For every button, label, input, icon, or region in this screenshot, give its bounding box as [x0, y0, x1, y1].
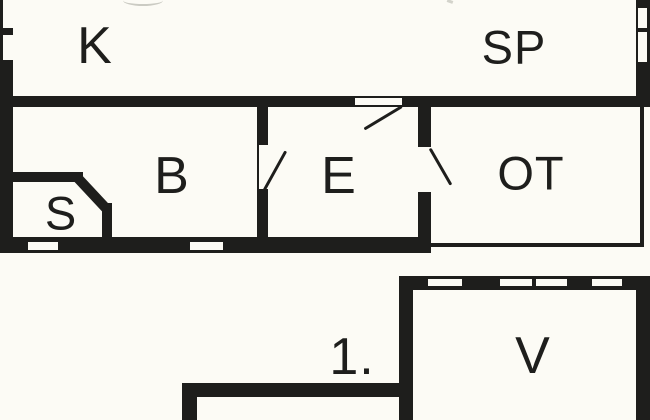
floor-plan-canvas: K SP B E OT S V 1.	[0, 0, 650, 420]
window-right-1	[638, 8, 647, 28]
room-label-k: K	[77, 20, 113, 72]
interior-wall-k-sp-bottom	[0, 96, 650, 107]
room-label-e: E	[321, 150, 357, 202]
window-v-2	[500, 279, 532, 286]
wall-v-left	[399, 276, 413, 420]
room-label-sp: SP	[482, 24, 547, 71]
room-k-area	[13, 0, 257, 96]
door-frame-e-sp-top	[355, 96, 402, 98]
door-frame-b-e	[257, 145, 259, 189]
room-sp-area	[268, 0, 636, 96]
room-label-s: S	[45, 190, 77, 237]
window-left-2	[3, 35, 13, 60]
window-v-1	[428, 279, 462, 286]
window-bottom-b	[190, 242, 223, 250]
terrace-wall-bottom-ot	[430, 243, 644, 247]
floor-number-label: 1.	[329, 331, 374, 383]
door-frame-e-sp-bottom	[355, 105, 402, 107]
window-bottom-s	[28, 242, 58, 250]
room-label-v: V	[515, 330, 551, 382]
door-opening-e-ot	[418, 147, 431, 192]
wall-lower-left-vertical	[182, 397, 197, 420]
room-label-ot: OT	[497, 150, 564, 197]
window-right-2	[638, 32, 647, 62]
window-left-1	[3, 0, 13, 28]
window-v-4	[592, 279, 622, 286]
terrace-wall-right-ot	[640, 107, 644, 247]
room-label-b: B	[154, 150, 190, 202]
window-v-3	[536, 279, 567, 286]
wall-lower-horizontal	[182, 383, 413, 397]
wall-v-right	[636, 290, 650, 420]
